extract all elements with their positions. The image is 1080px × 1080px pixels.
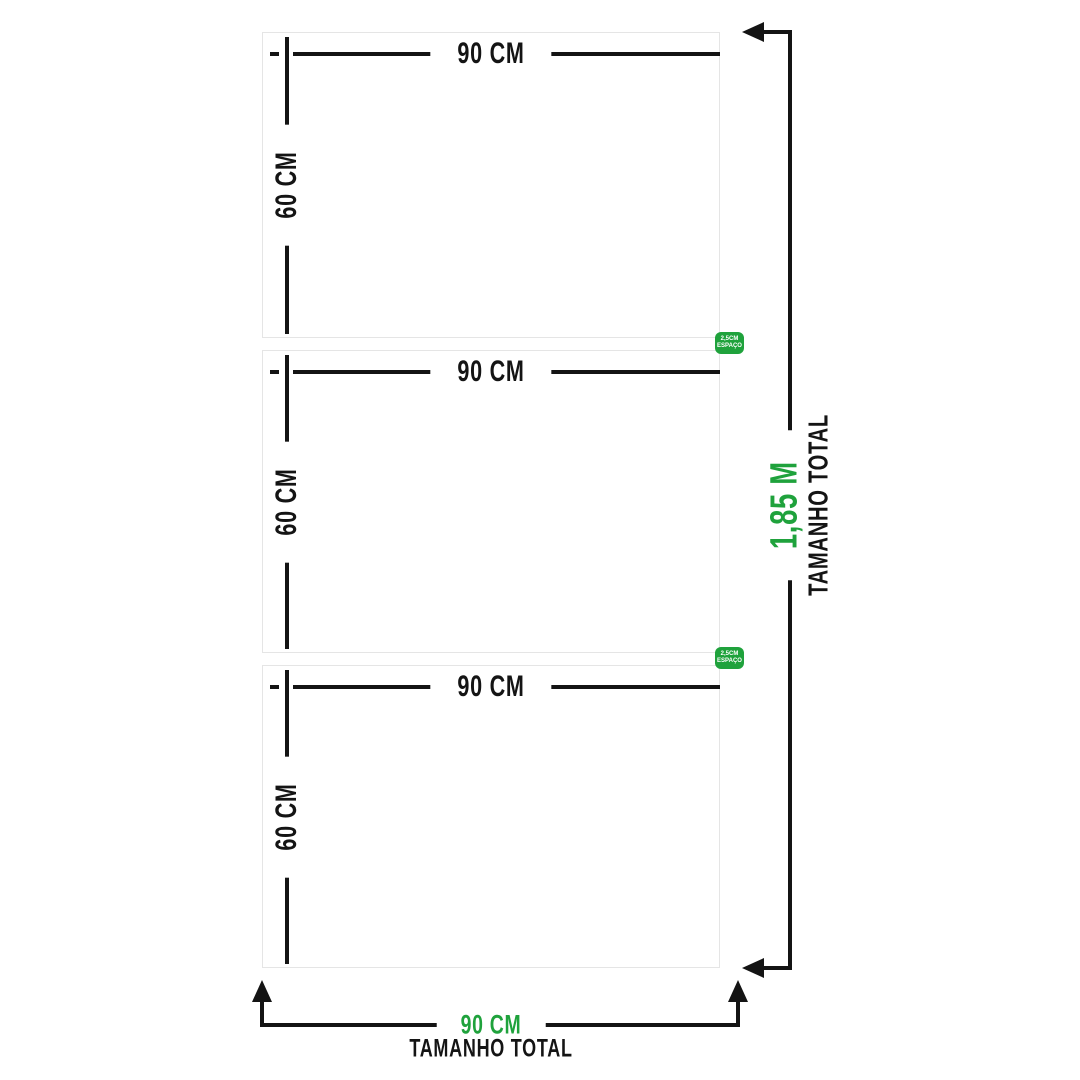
panel-1: 90 CM 60 CM (262, 32, 720, 338)
arrow-up-left-icon (252, 980, 272, 1002)
total-height-label-text: TAMANHO TOTAL (803, 414, 832, 596)
panel-2-height-value: 60 CM (272, 468, 302, 535)
spacing-badge-2: 2,5CM ESPAÇO (715, 647, 744, 669)
total-height-text: 1,85 M TAMANHO TOTAL (765, 379, 832, 632)
spacing-badge-1: 2,5CM ESPAÇO (715, 332, 744, 354)
total-width-label-text: TAMANHO TOTAL (409, 1037, 572, 1062)
panel-1-height-label: 60 CM (272, 124, 302, 245)
total-height-value: 1,85 M (765, 430, 803, 580)
total-height-label: TAMANHO TOTAL (803, 379, 832, 632)
panel-3-height-label: 60 CM (272, 756, 302, 877)
total-width-label: TAMANHO TOTAL (378, 1037, 605, 1062)
spacing-badge-2-size: 2,5CM (715, 651, 744, 658)
spacing-badge-2-text: ESPAÇO (715, 658, 744, 665)
arrow-left-bottom-icon (742, 958, 764, 978)
panel-3-width-value: 90 CM (457, 672, 524, 702)
panel-2: 90 CM 60 CM (262, 350, 720, 653)
panel-2-height-label: 60 CM (272, 441, 302, 562)
panel-1-width-label: 90 CM (430, 39, 551, 69)
panel-3-height-value: 60 CM (272, 783, 302, 850)
size-diagram: 90 CM 60 CM 90 CM 60 CM 90 CM 60 CM 2,5C… (0, 0, 1080, 1080)
panel-3: 90 CM 60 CM (262, 665, 720, 968)
panel-1-width-value: 90 CM (457, 39, 524, 69)
total-width-left-stub (260, 1000, 264, 1027)
panel-1-height-value: 60 CM (272, 151, 302, 218)
spacing-badge-1-size: 2,5CM (715, 336, 744, 343)
arrow-up-right-icon (728, 980, 748, 1002)
arrow-left-top-icon (742, 22, 764, 42)
panel-2-width-label: 90 CM (430, 357, 551, 387)
total-height-value-text: 1,85 M (765, 461, 803, 549)
panel-3-width-label: 90 CM (430, 672, 551, 702)
spacing-badge-1-text: ESPAÇO (715, 343, 744, 350)
panel-2-width-value: 90 CM (457, 357, 524, 387)
total-width-right-stub (736, 1000, 740, 1027)
